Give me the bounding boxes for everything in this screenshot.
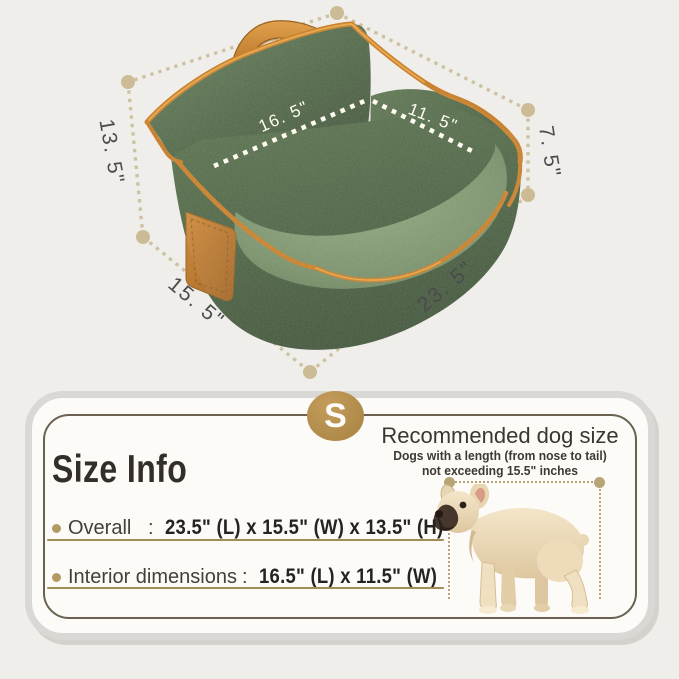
bullet-dot xyxy=(52,573,61,582)
spec-row-overall: Overall : 23.5" (L) x 15.5" (W) x 13.5" … xyxy=(52,515,481,541)
spec-underline-interior xyxy=(47,587,444,589)
recommended-dog-size-line1: Dogs with a length (from nose to tail) xyxy=(364,449,636,463)
spec-colon: : xyxy=(242,566,248,589)
spec-label: Overall xyxy=(68,517,148,540)
recommended-dog-size-heading: Recommended dog size xyxy=(372,423,628,449)
spec-label: Interior dimensions xyxy=(68,566,242,589)
size-badge-letter: S xyxy=(324,399,347,433)
spec-colon: : xyxy=(148,517,154,540)
spec-underline-overall xyxy=(47,539,444,541)
recommended-dog-size-line2: not exceeding 15.5" inches xyxy=(364,464,636,478)
spec-value: 23.5" (L) x 15.5" (W) x 13.5" (H) xyxy=(165,516,443,540)
spec-value: 16.5" (L) x 11.5" (W) xyxy=(259,565,437,589)
card-title: Size Info xyxy=(52,448,187,492)
french-bulldog xyxy=(434,484,590,614)
size-badge: S xyxy=(307,391,364,441)
pet-bed-size-infographic: 13. 5" 7. 5" 15. 5" 23. 5" 16. 5" 11. 5"… xyxy=(0,0,679,679)
bed-dimension-diagram xyxy=(0,0,679,392)
dog-photo xyxy=(430,484,602,616)
bullet-dot xyxy=(52,524,61,533)
